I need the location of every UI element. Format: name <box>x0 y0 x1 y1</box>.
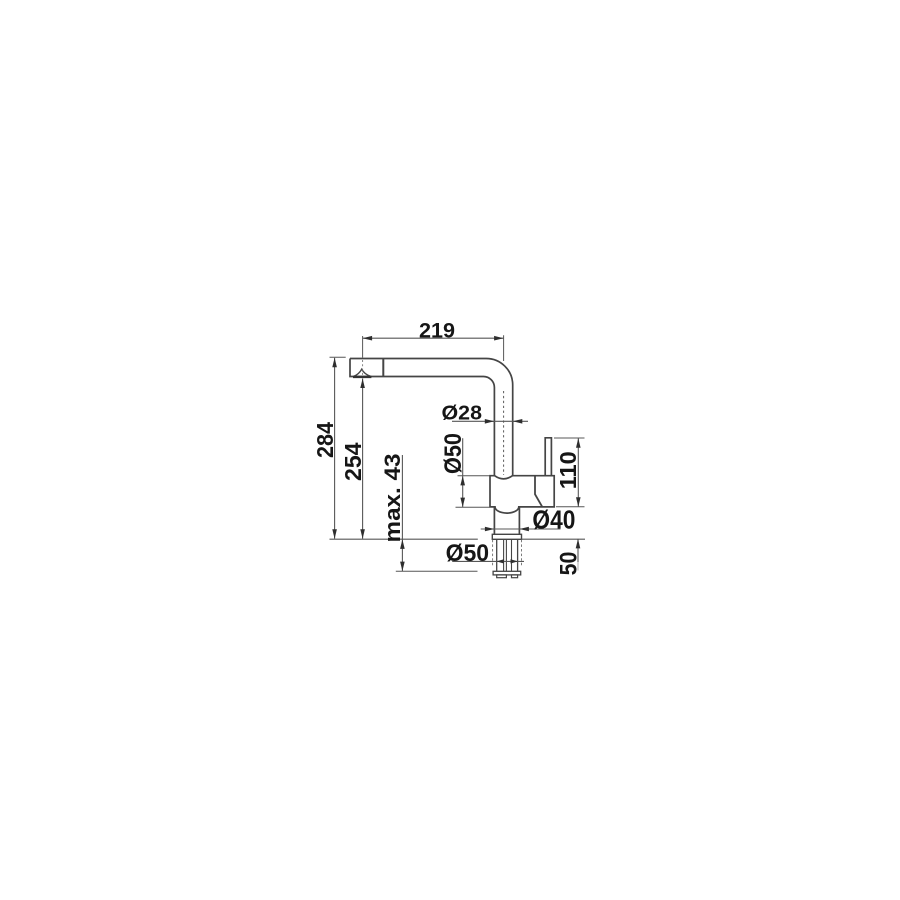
svg-text:Ø40: Ø40 <box>532 504 575 534</box>
svg-text:Ø50: Ø50 <box>440 433 467 474</box>
svg-text:50: 50 <box>555 552 582 576</box>
svg-text:284: 284 <box>312 422 338 458</box>
svg-text:219: 219 <box>419 318 455 342</box>
svg-text:Ø50: Ø50 <box>446 540 490 567</box>
svg-text:Ø28: Ø28 <box>442 401 483 424</box>
svg-text:110: 110 <box>555 451 581 489</box>
svg-text:254: 254 <box>340 442 366 481</box>
svg-text:max. 43: max. 43 <box>380 454 405 543</box>
